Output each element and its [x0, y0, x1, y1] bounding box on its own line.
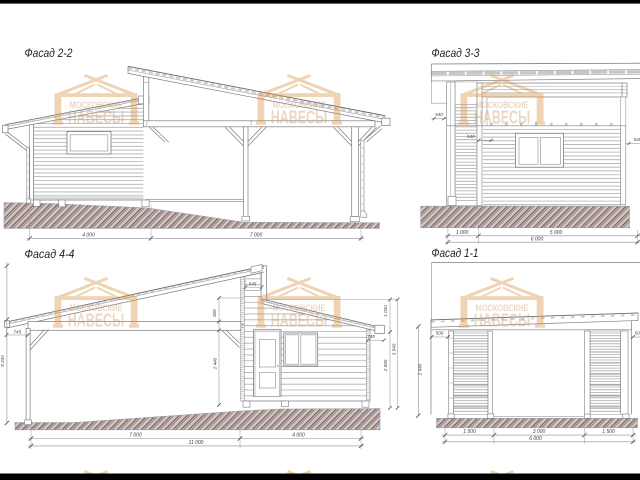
svg-text:1 500: 1 500	[463, 429, 476, 435]
svg-text:540: 540	[435, 112, 443, 117]
svg-text:7 000: 7 000	[250, 233, 263, 239]
svg-text:2 590: 2 590	[383, 359, 388, 372]
svg-text:540: 540	[467, 134, 475, 139]
svg-text:2 440: 2 440	[213, 357, 218, 370]
svg-text:1 000: 1 000	[456, 230, 469, 236]
svg-text:1 500: 1 500	[602, 429, 615, 435]
svg-text:800: 800	[212, 309, 217, 317]
svg-text:5 000: 5 000	[550, 230, 563, 236]
svg-text:2 940: 2 940	[417, 363, 422, 376]
svg-text:3 000: 3 000	[533, 429, 546, 435]
svg-text:1 030: 1 030	[383, 305, 388, 317]
svg-text:745: 745	[367, 334, 375, 339]
svg-text:540: 540	[634, 137, 640, 142]
svg-text:545: 545	[249, 282, 257, 287]
svg-text:3 540: 3 540	[391, 343, 396, 355]
svg-text:4 000: 4 000	[292, 432, 305, 438]
svg-text:Фасад 1-1: Фасад 1-1	[432, 248, 479, 260]
svg-text:Фасад 3-3: Фасад 3-3	[432, 48, 481, 60]
svg-text:7 000: 7 000	[129, 432, 142, 438]
svg-text:500: 500	[436, 330, 444, 335]
svg-text:11 000: 11 000	[189, 440, 204, 446]
svg-text:Фасад 2-2: Фасад 2-2	[25, 48, 74, 60]
svg-text:6 000: 6 000	[531, 236, 544, 242]
svg-text:4 000: 4 000	[82, 233, 95, 239]
svg-text:Фасад 4-4: Фасад 4-4	[25, 249, 75, 261]
svg-text:745: 745	[13, 329, 21, 334]
svg-text:500: 500	[635, 330, 640, 335]
svg-text:5 230: 5 230	[0, 355, 5, 367]
svg-text:6 000: 6 000	[529, 436, 542, 442]
